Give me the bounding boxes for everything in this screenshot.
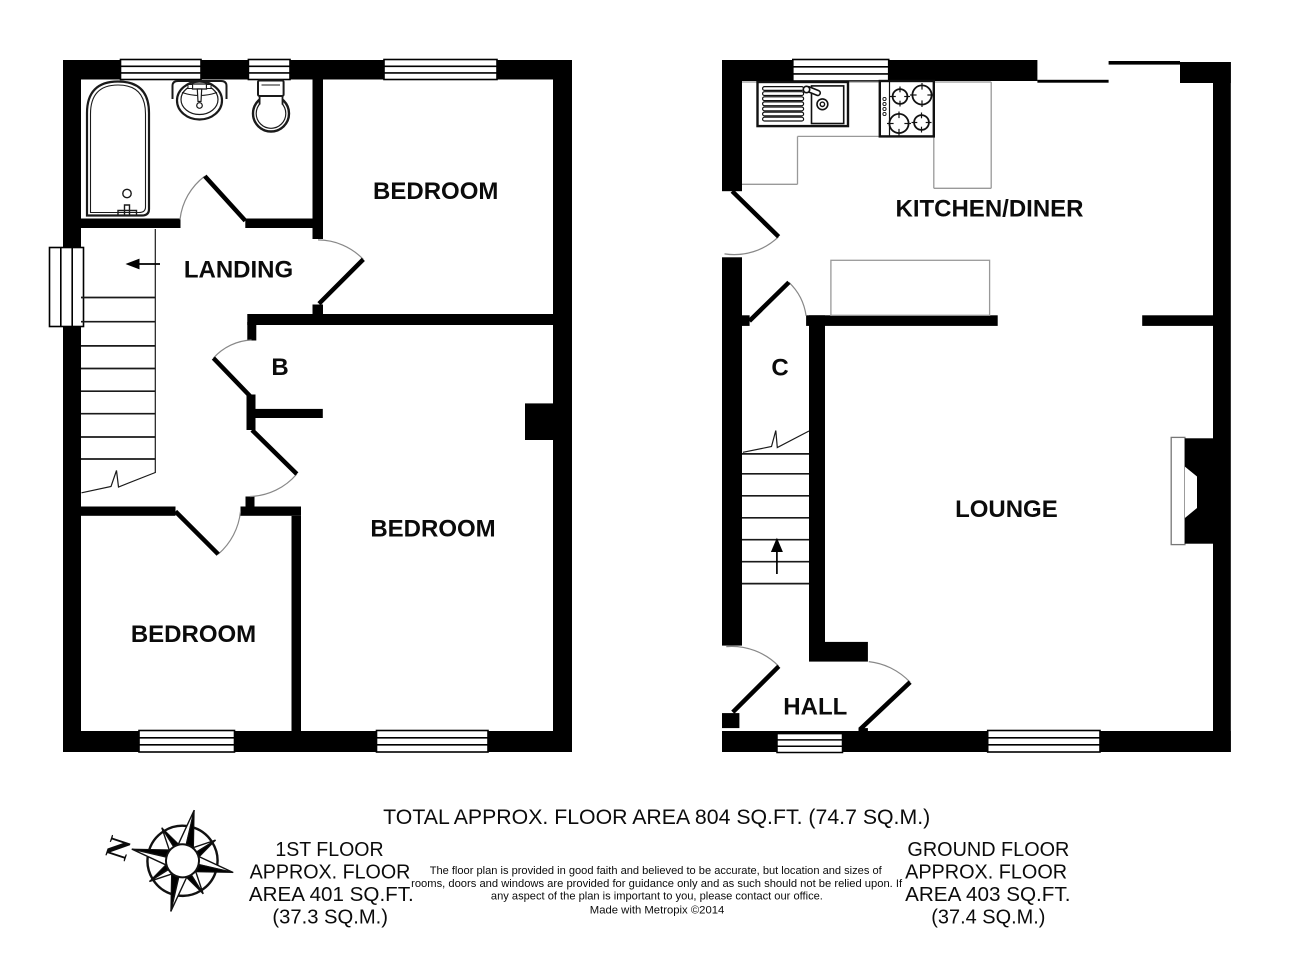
svg-text:AREA 401 SQ.FT.: AREA 401 SQ.FT. xyxy=(249,884,414,906)
svg-text:APPROX. FLOOR: APPROX. FLOOR xyxy=(905,861,1067,883)
svg-text:BEDROOM: BEDROOM xyxy=(370,516,495,543)
svg-text:any aspect of the plan is impo: any aspect of the plan is important to y… xyxy=(491,891,823,903)
svg-text:rooms, doors and windows are p: rooms, doors and windows are provided fo… xyxy=(411,878,903,890)
svg-text:LOUNGE: LOUNGE xyxy=(955,496,1058,523)
svg-text:AREA 403 SQ.FT.: AREA 403 SQ.FT. xyxy=(905,884,1070,906)
svg-text:Made with Metropix ©2014: Made with Metropix ©2014 xyxy=(590,905,725,917)
svg-text:(37.4 SQ.M.): (37.4 SQ.M.) xyxy=(931,907,1045,929)
svg-text:HALL: HALL xyxy=(783,694,847,721)
svg-text:LANDING: LANDING xyxy=(184,257,293,284)
svg-text:GROUND FLOOR: GROUND FLOOR xyxy=(907,839,1069,861)
svg-text:APPROX. FLOOR: APPROX. FLOOR xyxy=(250,861,411,883)
svg-text:C: C xyxy=(771,355,788,382)
svg-text:B: B xyxy=(271,354,288,381)
svg-text:The floor plan is provided in: The floor plan is provided in good faith… xyxy=(430,865,883,877)
svg-text:BEDROOM: BEDROOM xyxy=(131,621,256,648)
svg-text:KITCHEN/DINER: KITCHEN/DINER xyxy=(895,196,1083,223)
svg-text:(37.3 SQ.M.): (37.3 SQ.M.) xyxy=(272,907,388,929)
svg-text:TOTAL APPROX. FLOOR AREA 804 S: TOTAL APPROX. FLOOR AREA 804 SQ.FT. (74.… xyxy=(383,806,930,829)
svg-text:BEDROOM: BEDROOM xyxy=(373,178,498,205)
svg-text:1ST FLOOR: 1ST FLOOR xyxy=(275,839,383,861)
